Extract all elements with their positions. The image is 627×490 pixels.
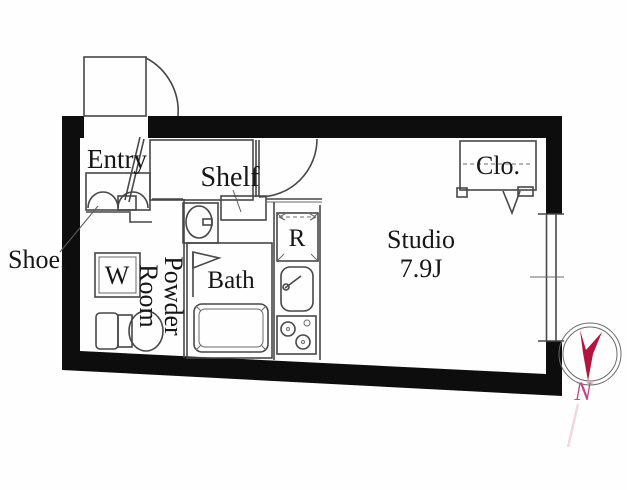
- kitchen-sink: [281, 267, 313, 311]
- studio-door-swing-arc: [259, 139, 317, 197]
- label-washer: W: [105, 261, 130, 290]
- label-powder-room: Powder Room: [134, 256, 188, 336]
- label-studio: Studio: [387, 225, 455, 254]
- washbasin: [183, 203, 218, 243]
- shelf-leader-line: [233, 190, 241, 212]
- label-studio-size: 7.9J: [400, 254, 443, 283]
- label-entry: Entry: [87, 144, 147, 174]
- studio-door: [256, 139, 317, 197]
- label-closet: Clo.: [476, 151, 520, 180]
- entry-door-leaf: [84, 57, 146, 116]
- bathroom: [187, 243, 272, 358]
- compass-tail-mark: [568, 404, 578, 447]
- label-shoe: Shoe.: [8, 245, 67, 274]
- entry-step-edge: [86, 212, 152, 222]
- floor-plan-drawing: Entry Shoe. Shelf W Powder Room Bath R S…: [0, 0, 627, 490]
- label-shelf: Shelf: [200, 162, 260, 193]
- label-north: N: [573, 377, 593, 406]
- bathtub: [194, 304, 268, 352]
- compass-needle: [580, 330, 602, 381]
- shoe-cabinet: [86, 173, 150, 210]
- stove: [277, 316, 316, 354]
- entry-door-swing-arc: [146, 58, 178, 116]
- svg-text:Room: Room: [134, 264, 163, 328]
- label-bath: Bath: [207, 267, 255, 294]
- floor-plan-canvas: Entry Shoe. Shelf W Powder Room Bath R S…: [0, 0, 627, 490]
- label-fridge: R: [289, 225, 306, 252]
